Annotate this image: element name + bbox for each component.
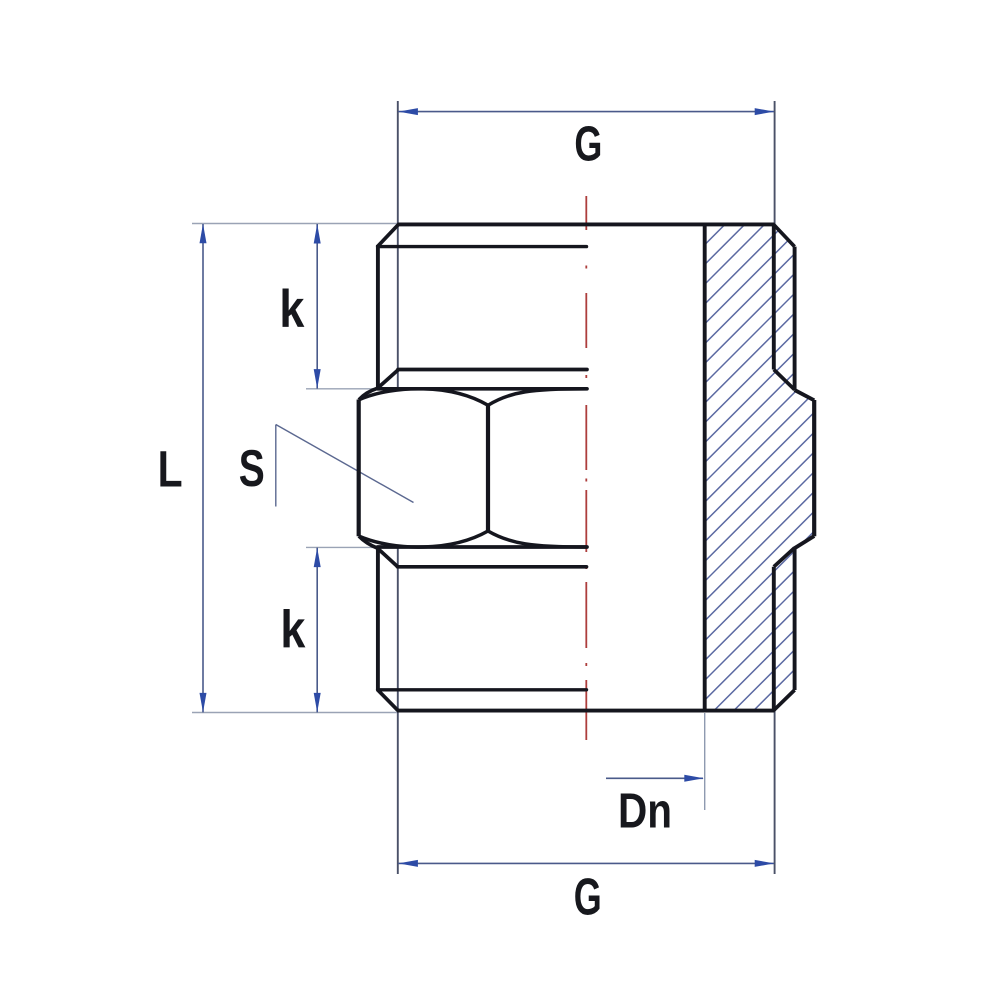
svg-text:L: L: [158, 441, 183, 498]
svg-text:G: G: [574, 868, 602, 926]
svg-text:S: S: [239, 440, 265, 498]
svg-text:k: k: [279, 280, 305, 339]
svg-text:Dn: Dn: [618, 784, 672, 839]
svg-text:k: k: [280, 600, 306, 659]
svg-text:G: G: [574, 117, 602, 172]
